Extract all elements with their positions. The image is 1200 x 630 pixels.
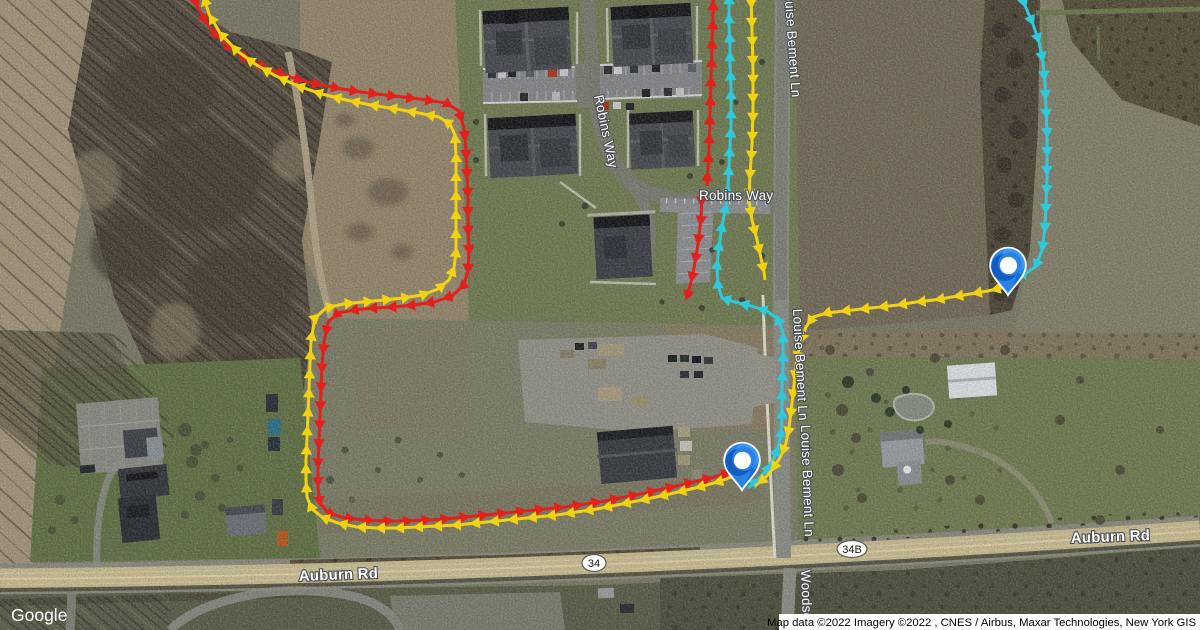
svg-text:34: 34 bbox=[588, 558, 600, 570]
svg-text:Map data ©2022 Imagery ©2022 ,: Map data ©2022 Imagery ©2022 , CNES / Ai… bbox=[767, 617, 1196, 629]
svg-text:Auburn Rd: Auburn Rd bbox=[299, 565, 379, 585]
svg-text:Auburn Rd: Auburn Rd bbox=[1071, 527, 1151, 547]
svg-text:34B: 34B bbox=[842, 544, 862, 556]
svg-text:Google: Google bbox=[11, 605, 67, 625]
svg-text:Robins Way: Robins Way bbox=[699, 188, 773, 203]
